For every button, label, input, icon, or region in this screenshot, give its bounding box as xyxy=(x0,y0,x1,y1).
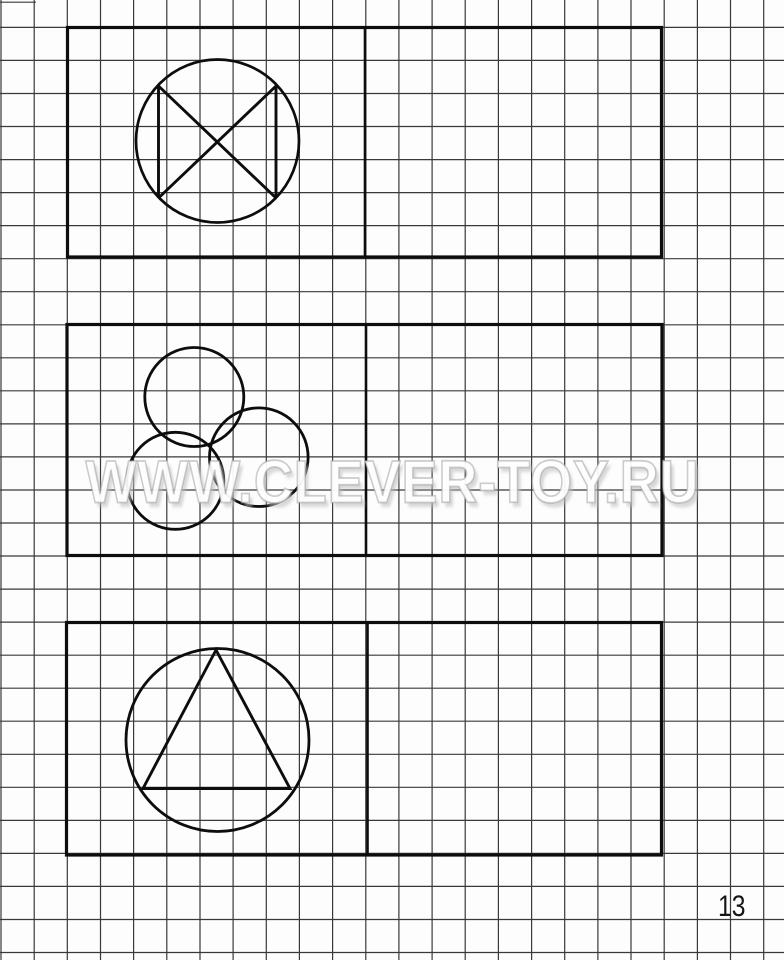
svg-text:13: 13 xyxy=(718,890,746,923)
svg-text:WWW.CLEVER-TOY.RU: WWW.CLEVER-TOY.RU xyxy=(85,449,699,516)
